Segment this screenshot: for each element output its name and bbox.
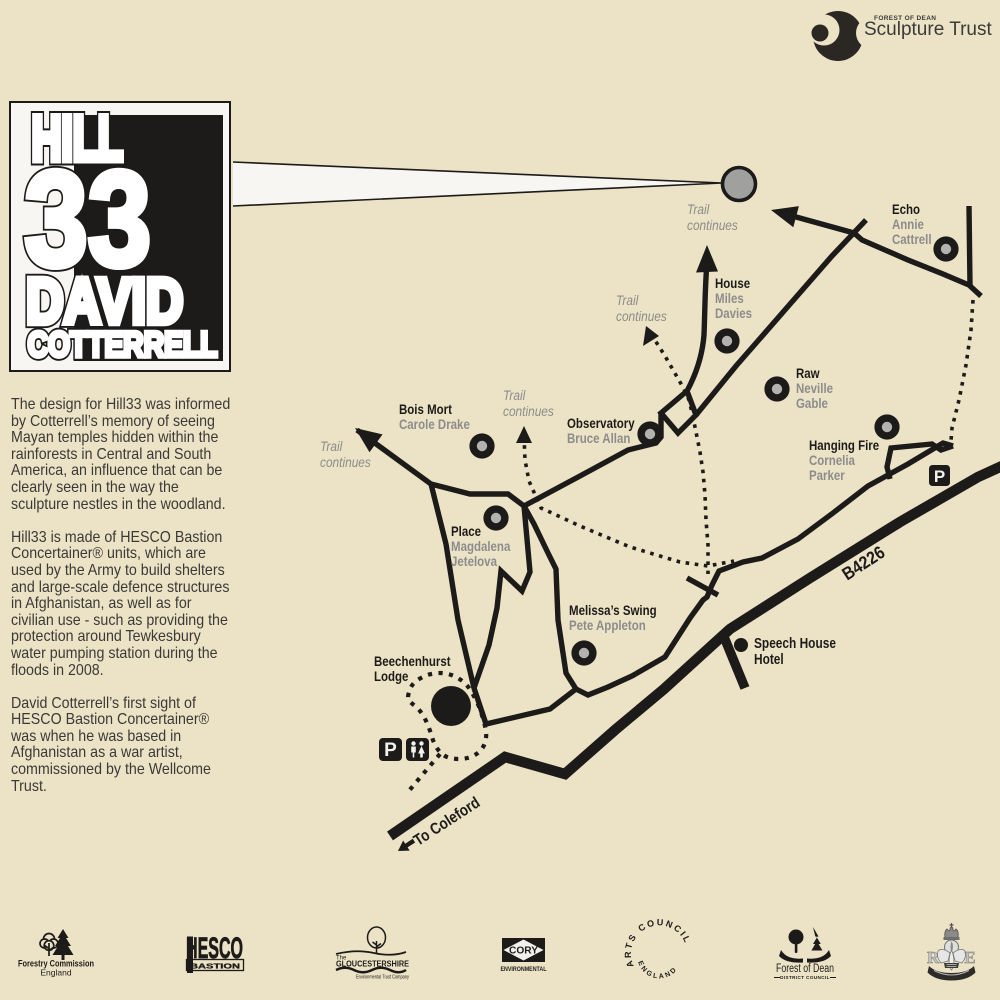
- svg-text:HESCO: HESCO: [186, 931, 243, 965]
- svg-text:R: R: [927, 948, 940, 967]
- svg-text:Forest of Dean: Forest of Dean: [776, 963, 834, 975]
- svg-text:GLOUCESTERSHIRE: GLOUCESTERSHIRE: [336, 960, 410, 969]
- svg-text:ENVIRONMENTAL: ENVIRONMENTAL: [501, 966, 547, 973]
- svg-text:E: E: [964, 948, 975, 967]
- svg-text:COTTERRELL: COTTERRELL: [28, 324, 218, 364]
- svg-text:ARTS COUNCIL: ARTS COUNCIL: [623, 917, 693, 968]
- svg-text:BASTION: BASTION: [190, 962, 240, 971]
- svg-text:ENGLAND: ENGLAND: [636, 960, 679, 981]
- svg-text:England: England: [40, 968, 71, 978]
- svg-text:Environmental Trust Company: Environmental Trust Company: [356, 975, 409, 981]
- svg-text:CORY: CORY: [509, 946, 538, 957]
- svg-text:DISTRICT COUNCIL: DISTRICT COUNCIL: [780, 975, 830, 980]
